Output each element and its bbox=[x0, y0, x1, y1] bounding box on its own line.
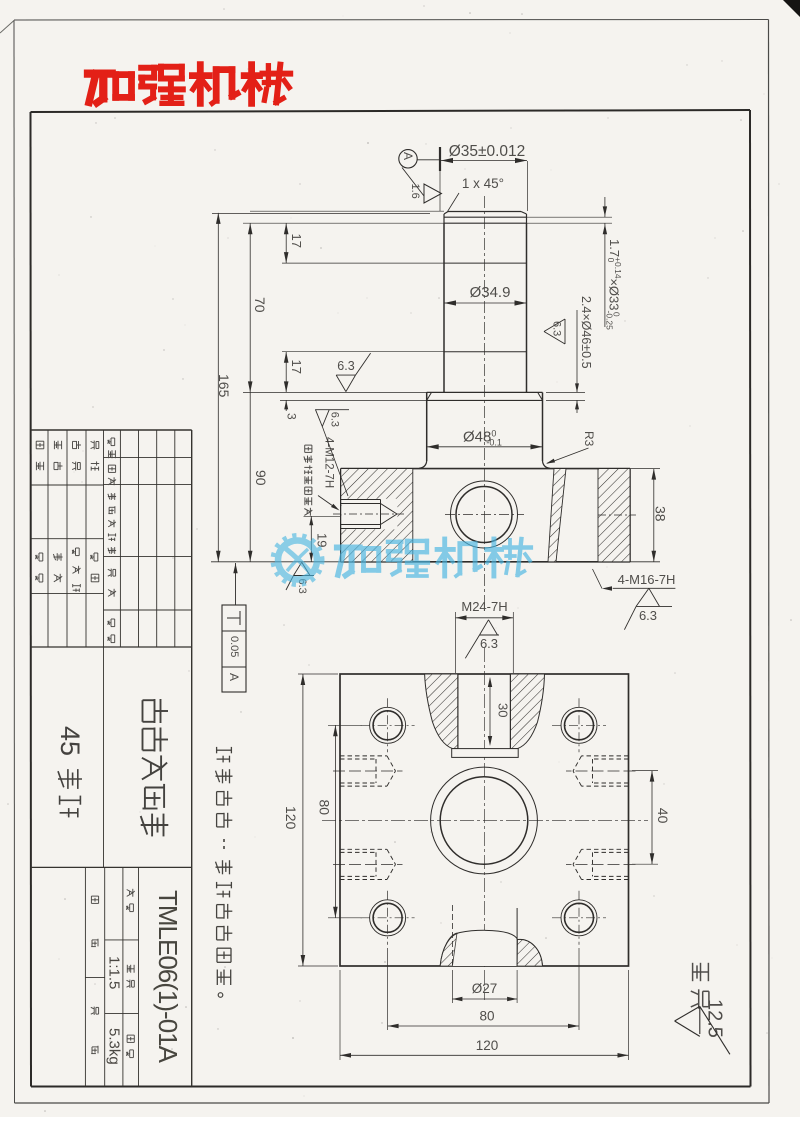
svg-text:80: 80 bbox=[479, 1009, 494, 1024]
svg-text:Ø35±0.012: Ø35±0.012 bbox=[449, 143, 526, 160]
svg-text:30: 30 bbox=[496, 703, 511, 717]
svg-text:40: 40 bbox=[655, 808, 671, 824]
svg-text:17: 17 bbox=[289, 360, 304, 374]
svg-text:6.3: 6.3 bbox=[329, 412, 341, 427]
svg-text:6.3: 6.3 bbox=[551, 321, 563, 336]
svg-text:90: 90 bbox=[253, 470, 269, 486]
svg-text:A: A bbox=[227, 673, 241, 681]
svg-text:1:1.5: 1:1.5 bbox=[105, 956, 122, 989]
svg-text:2.4×Ø46±0.5: 2.4×Ø46±0.5 bbox=[579, 296, 593, 369]
svg-text:3: 3 bbox=[285, 413, 299, 420]
svg-text:0.05: 0.05 bbox=[228, 636, 240, 657]
svg-text:Ø34.9: Ø34.9 bbox=[470, 284, 511, 301]
svg-text:4-M16-7H: 4-M16-7H bbox=[618, 572, 676, 587]
svg-text:TMLE06(1)-01A: TMLE06(1)-01A bbox=[153, 890, 183, 1064]
svg-text:70: 70 bbox=[252, 297, 268, 313]
svg-text:1.6: 1.6 bbox=[409, 184, 421, 199]
svg-text:1 x 45°: 1 x 45° bbox=[462, 176, 504, 191]
svg-text:6.3: 6.3 bbox=[639, 608, 657, 623]
svg-text:R3: R3 bbox=[582, 431, 596, 447]
svg-text:6.3: 6.3 bbox=[480, 636, 498, 651]
svg-text:45: 45 bbox=[55, 726, 85, 756]
svg-text:165: 165 bbox=[216, 374, 232, 398]
svg-text:5.3kg: 5.3kg bbox=[105, 1028, 122, 1065]
svg-text:6.3: 6.3 bbox=[337, 359, 354, 373]
svg-text:Ø480-0.1: Ø480-0.1 bbox=[463, 429, 502, 448]
svg-text:17: 17 bbox=[289, 234, 304, 248]
svg-text:Ø27: Ø27 bbox=[472, 981, 498, 996]
svg-text:1.7+0.140×Ø33-0.250: 1.7+0.140×Ø33-0.250 bbox=[605, 239, 624, 330]
svg-text:120: 120 bbox=[476, 1038, 499, 1053]
svg-text:120: 120 bbox=[283, 806, 299, 830]
svg-text:19: 19 bbox=[314, 533, 329, 547]
svg-text:M24-7H: M24-7H bbox=[461, 599, 507, 614]
svg-text:38: 38 bbox=[653, 506, 669, 522]
svg-text:A: A bbox=[401, 152, 415, 160]
svg-text:80: 80 bbox=[317, 800, 333, 816]
